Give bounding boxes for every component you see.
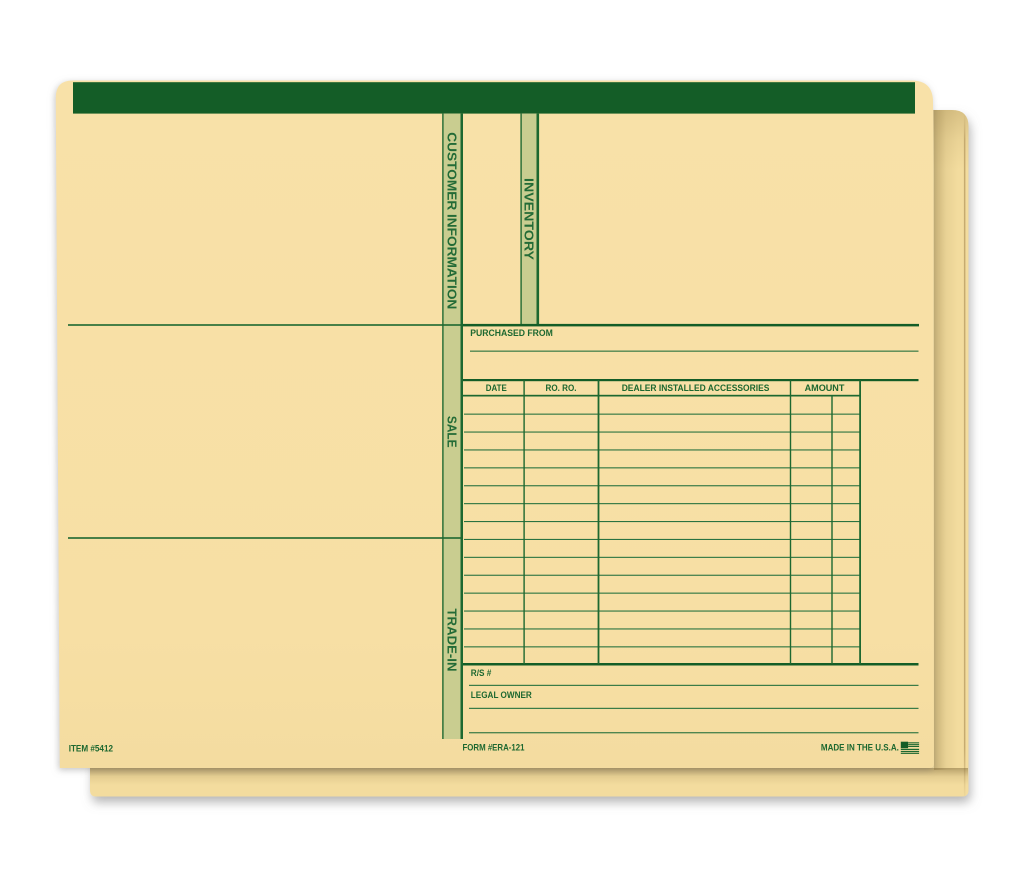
svg-text:MADE IN THE U.S.A.: MADE IN THE U.S.A. xyxy=(821,742,899,752)
svg-text:PURCHASED FROM: PURCHASED FROM xyxy=(470,328,553,338)
svg-text:TRADE-IN: TRADE-IN xyxy=(445,609,460,672)
svg-text:AMOUNT: AMOUNT xyxy=(805,383,845,393)
svg-text:DATE: DATE xyxy=(486,383,507,393)
svg-text:DEALER INSTALLED ACCESSORIES: DEALER INSTALLED ACCESSORIES xyxy=(622,383,770,393)
svg-text:LEGAL OWNER: LEGAL OWNER xyxy=(471,690,532,700)
svg-text:SALE: SALE xyxy=(445,416,460,448)
svg-text:ITEM #5412: ITEM #5412 xyxy=(69,743,113,754)
svg-text:FORM #ERA-121: FORM #ERA-121 xyxy=(463,743,525,753)
svg-text:CUSTOMER INFORMATION: CUSTOMER INFORMATION xyxy=(445,132,460,309)
svg-text:RO. RO.: RO. RO. xyxy=(546,383,577,393)
svg-text:INVENTORY: INVENTORY xyxy=(521,178,536,260)
svg-text:R/S #: R/S # xyxy=(471,668,492,678)
